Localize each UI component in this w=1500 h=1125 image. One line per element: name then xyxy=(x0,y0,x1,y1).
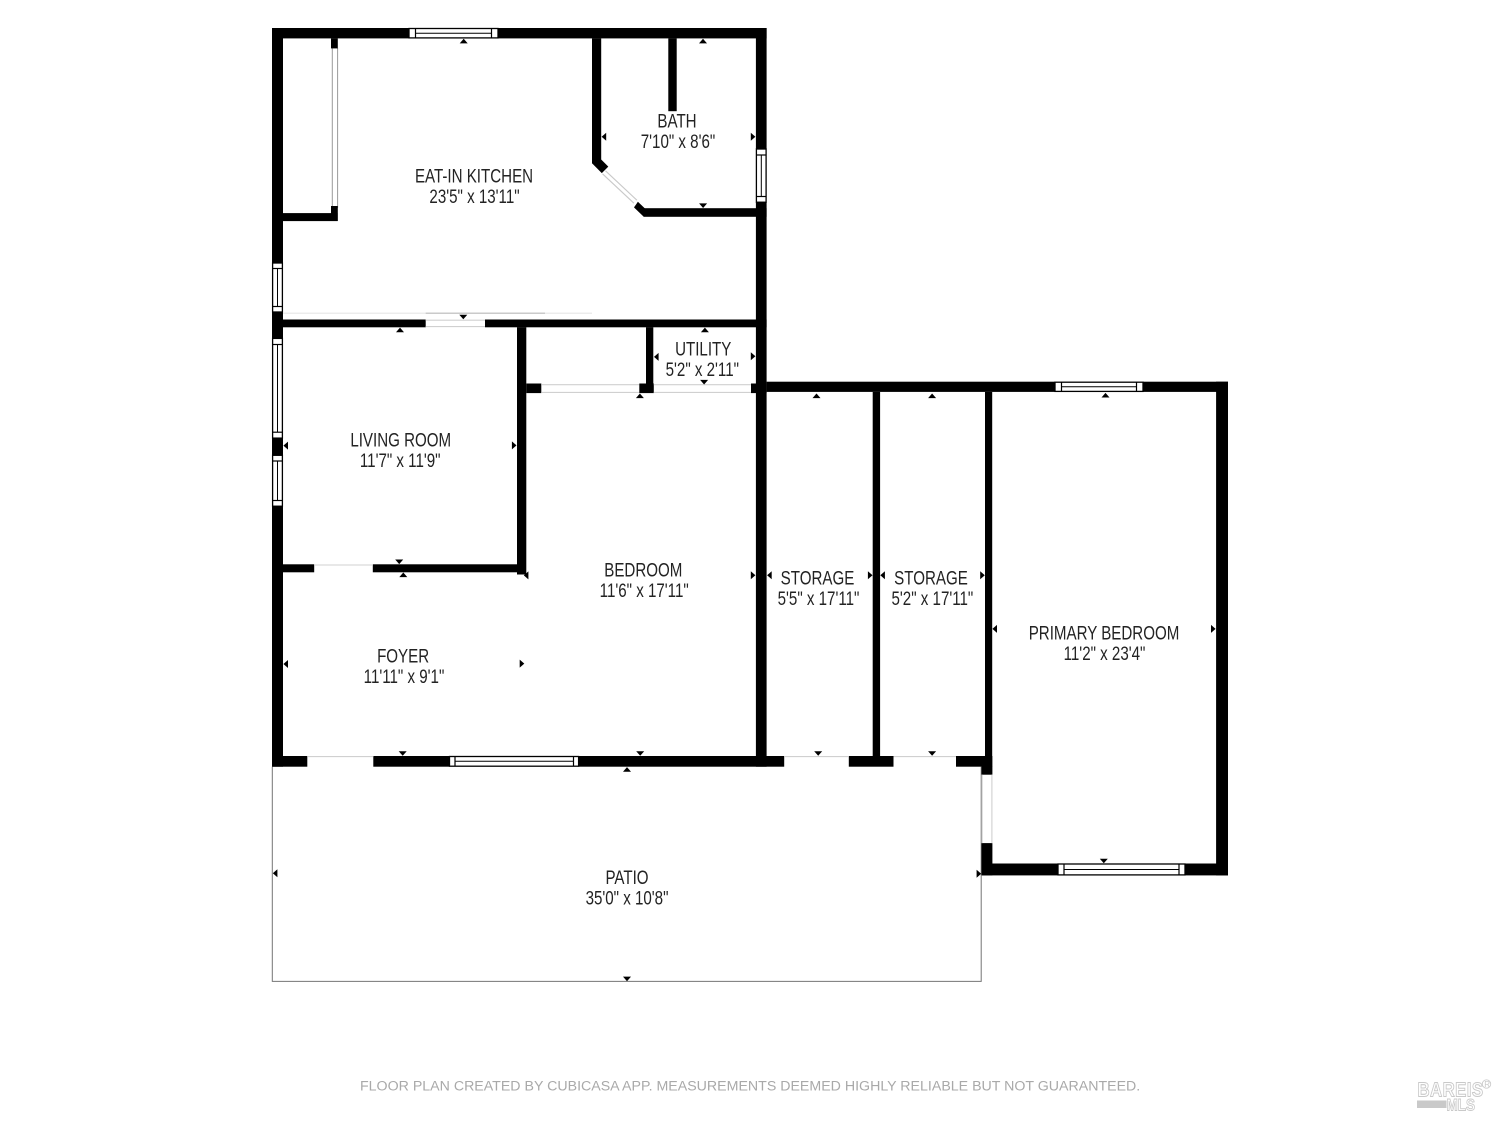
svg-text:23'5" x 13'11": 23'5" x 13'11" xyxy=(429,185,519,207)
svg-text:5'5" x 17'11": 5'5" x 17'11" xyxy=(778,587,860,609)
svg-text:BATH: BATH xyxy=(657,110,696,132)
svg-text:R: R xyxy=(1484,1080,1490,1089)
svg-text:7'10" x 8'6": 7'10" x 8'6" xyxy=(641,130,715,152)
svg-text:LIVING ROOM: LIVING ROOM xyxy=(350,429,451,451)
svg-text:11'6" x 17'11": 11'6" x 17'11" xyxy=(600,579,689,601)
svg-text:PATIO: PATIO xyxy=(605,866,648,888)
svg-text:11'11" x 9'1": 11'11" x 9'1" xyxy=(364,665,445,687)
svg-text:STORAGE: STORAGE xyxy=(894,567,968,589)
svg-text:35'0" x 10'8": 35'0" x 10'8" xyxy=(586,886,669,908)
svg-text:UTILITY: UTILITY xyxy=(675,338,732,360)
svg-text:EAT-IN KITCHEN: EAT-IN KITCHEN xyxy=(415,165,533,187)
svg-text:PRIMARY BEDROOM: PRIMARY BEDROOM xyxy=(1029,621,1180,643)
svg-text:5'2" x 2'11": 5'2" x 2'11" xyxy=(666,358,739,380)
svg-text:STORAGE: STORAGE xyxy=(781,567,855,589)
svg-text:BEDROOM: BEDROOM xyxy=(604,558,682,580)
svg-text:5'2" x 17'11": 5'2" x 17'11" xyxy=(892,587,974,609)
svg-text:FOYER: FOYER xyxy=(377,645,429,667)
svg-text:11'2" x 23'4": 11'2" x 23'4" xyxy=(1064,642,1146,664)
svg-text:11'7" x 11'9": 11'7" x 11'9" xyxy=(360,449,441,471)
svg-text:FLOOR PLAN CREATED BY CUBICASA: FLOOR PLAN CREATED BY CUBICASA APP. MEAS… xyxy=(360,1079,1140,1095)
svg-text:MLS: MLS xyxy=(1447,1096,1476,1115)
